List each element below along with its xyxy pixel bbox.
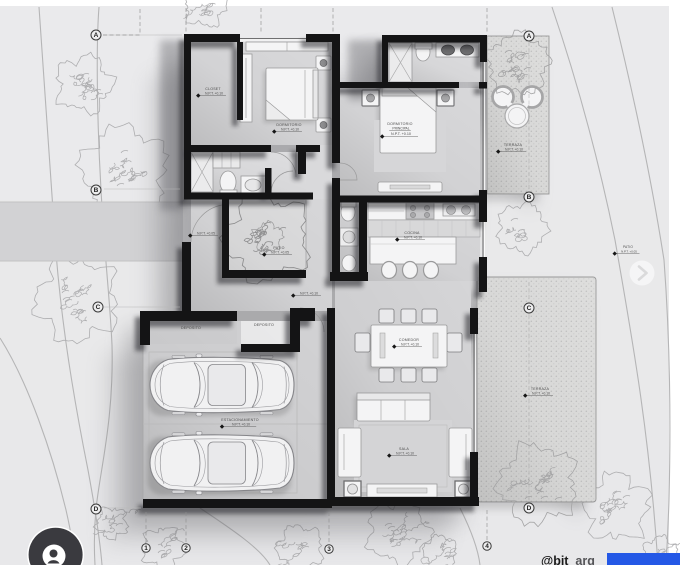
svg-text:N.P.T. +0.10: N.P.T. +0.10: [232, 422, 250, 426]
svg-text:TERRAZA: TERRAZA: [531, 387, 550, 391]
svg-text:PATIO: PATIO: [273, 246, 284, 250]
svg-text:A: A: [94, 32, 99, 39]
svg-text:DEPOSITO: DEPOSITO: [181, 326, 201, 330]
svg-text:C: C: [527, 305, 532, 312]
svg-text:N.P.T. +0.05: N.P.T. +0.05: [621, 249, 637, 253]
svg-text:N.P.T. +0.10: N.P.T. +0.10: [300, 291, 318, 295]
svg-text:B: B: [94, 187, 99, 194]
svg-text:A: A: [527, 33, 532, 40]
svg-text:N.P.T. +0.10: N.P.T. +0.10: [505, 147, 523, 151]
svg-text:N.P.T. +0.10: N.P.T. +0.10: [404, 235, 422, 239]
svg-text:PRINCIPAL: PRINCIPAL: [392, 126, 409, 130]
svg-text:N.P.T. +0.10: N.P.T. +0.10: [391, 132, 411, 136]
svg-text:4: 4: [485, 543, 489, 550]
svg-text:@bit_arq: @bit_arq: [541, 554, 595, 565]
svg-text:DORMITORIO: DORMITORIO: [276, 123, 301, 127]
svg-text:N.P.T. +0.05: N.P.T. +0.05: [197, 231, 215, 235]
svg-text:COMEDOR: COMEDOR: [399, 338, 419, 342]
svg-text:N.P.T. +0.10: N.P.T. +0.10: [281, 127, 299, 131]
svg-text:SALA: SALA: [399, 447, 409, 451]
svg-text:N.P.T. +0.05: N.P.T. +0.05: [271, 250, 289, 254]
svg-text:N.P.T. +0.10: N.P.T. +0.10: [532, 391, 550, 395]
svg-text:D: D: [94, 506, 99, 513]
svg-text:C: C: [96, 304, 101, 311]
svg-text:COCINA: COCINA: [404, 231, 420, 235]
svg-text:B: B: [527, 194, 532, 201]
svg-text:CLOSET: CLOSET: [205, 87, 221, 91]
svg-text:1: 1: [144, 545, 148, 552]
svg-text:DEPOSITO: DEPOSITO: [254, 323, 274, 327]
svg-text:N.P.T. +0.10: N.P.T. +0.10: [205, 91, 223, 95]
svg-text:D: D: [527, 505, 532, 512]
svg-text:N.P.T. +0.10: N.P.T. +0.10: [401, 342, 419, 346]
svg-text:ESTACIONAMIENTO: ESTACIONAMIENTO: [221, 418, 258, 422]
svg-text:PATIO: PATIO: [623, 245, 633, 249]
svg-text:3: 3: [327, 546, 331, 553]
svg-text:TERRAZA: TERRAZA: [504, 143, 523, 147]
svg-text:2: 2: [184, 545, 188, 552]
svg-text:DORMITORIO: DORMITORIO: [387, 122, 412, 126]
svg-text:N.P.T. +0.10: N.P.T. +0.10: [396, 451, 414, 455]
